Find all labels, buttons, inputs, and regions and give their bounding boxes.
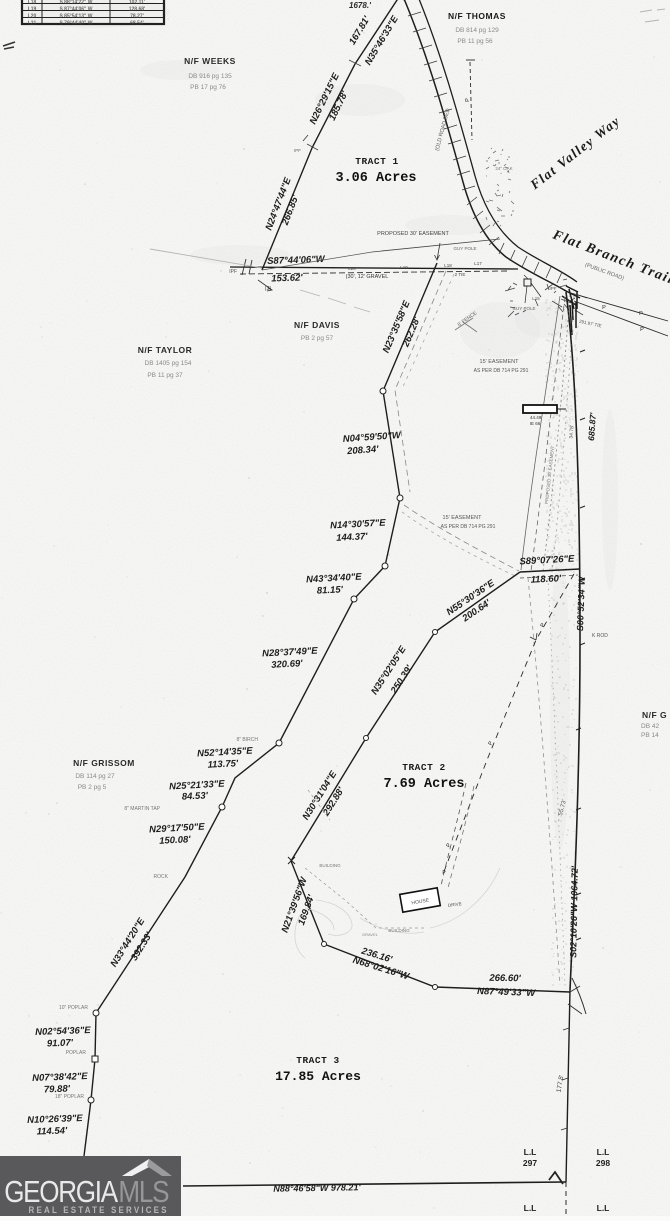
svg-text:REAL ESTATE SERVICES: REAL ESTATE SERVICES <box>29 1204 169 1215</box>
svg-text:IPF: IPF <box>294 148 301 153</box>
svg-text:P: P <box>640 327 644 333</box>
svg-text:DB 916 pg 135: DB 916 pg 135 <box>188 73 232 80</box>
svg-text:34.78': 34.78' <box>568 425 575 439</box>
svg-text:AS PER DB 714 PG 291: AS PER DB 714 PG 291 <box>474 368 529 374</box>
svg-text:15' EASEMENT: 15' EASEMENT <box>443 515 483 521</box>
svg-text:78.27': 78.27' <box>130 14 144 20</box>
svg-text:TRACT 3: TRACT 3 <box>296 1055 339 1066</box>
svg-text:8" BIRCH: 8" BIRCH <box>236 737 258 743</box>
svg-text:298: 298 <box>596 1158 610 1168</box>
svg-text:7.69 Acres: 7.69 Acres <box>383 777 464 792</box>
svg-text:L21: L21 <box>28 21 37 27</box>
svg-text:128.68': 128.68' <box>129 7 145 13</box>
svg-text:N07°38'42"E: N07°38'42"E <box>32 1071 88 1084</box>
svg-text:L19: L19 <box>28 7 37 13</box>
svg-text:17.85 Acres: 17.85 Acres <box>275 1069 361 1084</box>
svg-text:114.54': 114.54' <box>36 1125 68 1137</box>
svg-text:PB 17 pg 76: PB 17 pg 76 <box>190 84 226 91</box>
svg-text:L17: L17 <box>474 261 482 266</box>
svg-text:ROCK: ROCK <box>154 874 169 880</box>
svg-text:S02°10'26"W 1064.72': S02°10'26"W 1064.72' <box>568 865 580 958</box>
svg-text:L19: L19 <box>400 265 408 270</box>
svg-text:DB 42: DB 42 <box>641 723 659 730</box>
svg-text:L.L: L.L <box>597 1203 610 1213</box>
svg-text:N/F DAVIS: N/F DAVIS <box>294 320 340 330</box>
svg-text:266.60': 266.60' <box>488 973 521 985</box>
svg-text:81.15': 81.15' <box>317 584 344 596</box>
svg-text:297: 297 <box>523 1158 537 1168</box>
svg-text:DB 1405 pg 154: DB 1405 pg 154 <box>145 360 192 367</box>
svg-text:PB 14: PB 14 <box>641 732 659 739</box>
svg-text:N87°49'33"W: N87°49'33"W <box>477 986 536 999</box>
svg-text:N02°54'36"E: N02°54'36"E <box>35 1025 91 1038</box>
svg-text:GUY POLE: GUY POLE <box>454 246 477 251</box>
svg-text:TRACT 2: TRACT 2 <box>402 762 445 773</box>
svg-text:L.L: L.L <box>597 1147 610 1157</box>
svg-text:N10°26'39"E: N10°26'39"E <box>27 1113 83 1126</box>
svg-text:DB 814 pg 129: DB 814 pg 129 <box>455 27 499 34</box>
svg-text:P: P <box>465 98 471 102</box>
svg-text:(30', 12' GRAVEL: (30', 12' GRAVEL <box>346 274 389 280</box>
svg-text:AS PER DB 714 PG 291: AS PER DB 714 PG 291 <box>441 524 496 530</box>
svg-text:IE 66: IE 66 <box>530 421 541 426</box>
svg-text:2 TIE: 2 TIE <box>455 272 466 277</box>
svg-text:PB 11 pg 37: PB 11 pg 37 <box>147 372 183 379</box>
svg-text:91.07': 91.07' <box>47 1038 74 1050</box>
svg-text:N/F G: N/F G <box>642 710 667 720</box>
svg-text:IPF: IPF <box>549 286 556 291</box>
svg-text:10" POPLAR: 10" POPLAR <box>59 1005 88 1011</box>
svg-text:208.34': 208.34' <box>346 444 380 457</box>
svg-text:S 79°44'40" W: S 79°44'40" W <box>59 21 92 27</box>
svg-text:P: P <box>639 311 643 317</box>
svg-text:L.L: L.L <box>524 1203 537 1213</box>
svg-text:84.53': 84.53' <box>182 790 209 802</box>
svg-text:1678.': 1678.' <box>349 1 372 10</box>
svg-text:15' EASEMENT: 15' EASEMENT <box>480 359 520 365</box>
svg-text:118.60': 118.60' <box>530 573 562 586</box>
svg-text:P: P <box>602 305 606 311</box>
svg-text:N/F WEEKS: N/F WEEKS <box>184 56 236 66</box>
svg-text:320.69': 320.69' <box>271 658 304 671</box>
svg-text:N/F GRISSOM: N/F GRISSOM <box>73 758 135 768</box>
svg-text:POPLAR: POPLAR <box>66 1050 87 1056</box>
svg-text:S 87°44'06" W: S 87°44'06" W <box>59 7 92 13</box>
svg-text:K ROD: K ROD <box>592 633 608 639</box>
svg-text:PB 2 pg 57: PB 2 pg 57 <box>301 335 334 342</box>
svg-text:L.L: L.L <box>524 1147 537 1157</box>
svg-text:PB 2 pg 5: PB 2 pg 5 <box>78 784 107 791</box>
svg-text:18" POPLAR: 18" POPLAR <box>55 1094 84 1100</box>
svg-text:153.62': 153.62' <box>271 272 303 284</box>
svg-text:PB 11 pg 56: PB 11 pg 56 <box>457 38 493 45</box>
svg-text:S 88°14'22" W: S 88°14'22" W <box>59 0 92 6</box>
svg-text:L20: L20 <box>348 266 356 271</box>
svg-text:PROPOSED 30' EASEMENT: PROPOSED 30' EASEMENT <box>377 231 449 237</box>
svg-text:S87°44'06"W: S87°44'06"W <box>267 254 326 267</box>
svg-text:L18: L18 <box>28 0 37 6</box>
svg-text:102.11': 102.11' <box>129 0 145 6</box>
svg-text:TRACT 1: TRACT 1 <box>355 156 398 167</box>
svg-text:GUY POLE: GUY POLE <box>513 306 536 311</box>
svg-text:44.49': 44.49' <box>530 415 542 420</box>
svg-text:144.37': 144.37' <box>336 531 369 544</box>
svg-text:BUILDING: BUILDING <box>319 863 341 868</box>
svg-text:N/F THOMAS: N/F THOMAS <box>448 11 506 21</box>
svg-text:S00°52'34"W: S00°52'34"W <box>575 575 587 631</box>
svg-text:3.06 Acres: 3.06 Acres <box>335 171 416 186</box>
svg-text:68.54': 68.54' <box>130 21 144 27</box>
svg-text:N88°46'58"W 978.21': N88°46'58"W 978.21' <box>273 1182 361 1194</box>
svg-text:150.08': 150.08' <box>159 834 192 847</box>
svg-text:8" MARTIN TAP: 8" MARTIN TAP <box>124 806 160 812</box>
svg-text:S 85°54'13" W: S 85°54'13" W <box>59 14 92 20</box>
svg-text:IPF: IPF <box>229 269 237 275</box>
svg-text:BUILDING: BUILDING <box>388 928 410 933</box>
svg-text:685.87': 685.87' <box>586 411 598 441</box>
svg-text:L18: L18 <box>444 263 452 268</box>
svg-text:L20: L20 <box>28 14 37 20</box>
svg-text:L15: L15 <box>532 296 540 301</box>
svg-text:113.75': 113.75' <box>207 758 239 771</box>
svg-text:GRAVEL: GRAVEL <box>362 932 379 937</box>
svg-text:N/F TAYLOR: N/F TAYLOR <box>138 345 193 355</box>
svg-text:DB 114 pg 27: DB 114 pg 27 <box>75 773 115 780</box>
svg-text:24" OAK: 24" OAK <box>495 166 512 171</box>
